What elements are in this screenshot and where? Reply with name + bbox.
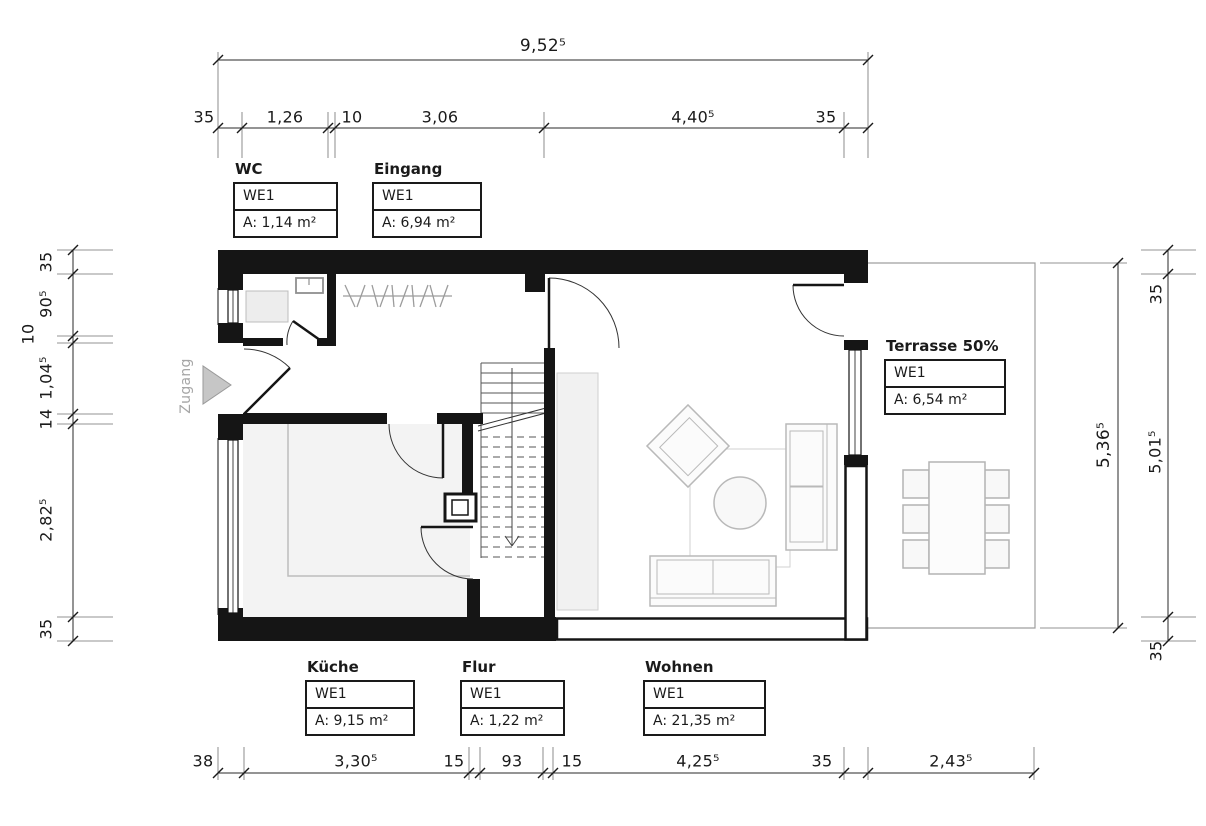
entry-door [244,349,290,414]
room-stamp-box: WE1 A: 1,14 m² [233,182,338,238]
terrace [868,263,1035,628]
duct-shaft [445,494,476,521]
room-area: A: 21,35 m² [645,707,764,734]
room-stamp-box: WE1 A: 6,94 m² [372,182,482,238]
hollow-wall-right [846,466,867,640]
wc-door [287,321,327,345]
room-area: A: 9,15 m² [307,707,413,734]
dim-top-0: 35 [194,108,215,127]
room-stamp-eingang: Eingang WE1 A: 6,94 m² [372,160,482,238]
dim-left-4: 14 [37,409,56,430]
room-name: Terrasse 50% [886,337,1006,355]
room-unit: WE1 [645,682,764,707]
room-stamp-wohnen: Wohnen WE1 A: 21,35 m² [643,658,766,736]
room-area: A: 6,94 m² [374,209,480,236]
dim-bottom-3: 93 [502,752,523,771]
wc-window [218,288,238,325]
room-name: Eingang [374,160,482,178]
dim-top-3: 3,06 [422,108,459,127]
dim-right-2: 35 [1147,641,1166,662]
terrace-door [793,285,844,336]
terrace-window [849,350,861,455]
dim-top-2: 10 [342,108,363,127]
living-room-furniture [647,405,837,606]
room-stamp-terrasse: Terrasse 50% WE1 A: 6,54 m² [884,337,1006,415]
dim-left-0: 35 [37,252,56,273]
room-name: Küche [307,658,415,676]
dim-right-1: 5,01⁵ [1146,430,1165,474]
dim-left-2: 10 [19,324,38,345]
room-stamp-box: WE1 A: 1,22 m² [460,680,565,736]
room-stamp-box: WE1 A: 21,35 m² [643,680,766,736]
dim-top-1: 1,26 [267,108,304,127]
hollow-wall-bottom [557,619,867,640]
wc-fixtures [246,278,323,322]
dim-left-5: 2,82⁵ [37,498,56,542]
dim-top-4: 4,40⁵ [671,108,715,127]
room-stamp-box: WE1 A: 6,54 m² [884,359,1006,415]
wardrobe-hatching [343,285,452,307]
room-unit: WE1 [307,682,413,707]
dim-bottom-4: 15 [562,752,583,771]
dim-top-5: 35 [816,108,837,127]
kitchen-window [218,438,238,615]
dim-bottom-6: 35 [812,752,833,771]
sofa-right [786,424,837,550]
room-unit: WE1 [374,184,480,209]
dim-bottom-1: 3,30⁵ [334,752,378,771]
dim-bottom-0: 38 [193,752,214,771]
room-stamp-kueche: Küche WE1 A: 9,15 m² [305,658,415,736]
dim-bottom-5: 4,25⁵ [676,752,720,771]
room-stamp-wc: WC WE1 A: 1,14 m² [233,160,338,238]
room-stamp-box: WE1 A: 9,15 m² [305,680,415,736]
dim-left-6: 35 [37,619,56,640]
room-unit: WE1 [462,682,563,707]
dim-right-total: 5,36⁵ [1094,422,1114,468]
dim-bottom-2: 15 [444,752,465,771]
room-unit: WE1 [235,184,336,209]
room-stamp-flur: Flur WE1 A: 1,22 m² [460,658,565,736]
room-area: A: 1,14 m² [235,209,336,236]
dim-left-3: 1,04⁵ [37,356,56,400]
entrance-label: Zugang [178,358,194,414]
dim-left-1: 90⁵ [37,290,56,318]
room-name: Wohnen [645,658,766,676]
dim-bottom-7: 2,43⁵ [929,752,973,771]
staircase [478,363,546,558]
terrace-dining-set [903,462,1009,574]
dim-top-total: 9,52⁵ [520,36,566,56]
room-area: A: 6,54 m² [886,386,1004,413]
living-room-door [549,278,619,348]
entrance-arrow-icon [203,366,231,404]
dim-right-0: 35 [1147,284,1166,305]
room-name: Flur [462,658,565,676]
coffee-table [714,477,766,529]
room-name: WC [235,160,338,178]
room-area: A: 1,22 m² [462,707,563,734]
floor-plan-canvas: 9,52⁵ 35 1,26 10 3,06 4,40⁵ 35 38 3,30⁵ … [0,0,1206,826]
armchair [647,405,729,487]
room-unit: WE1 [886,361,1004,386]
sofa-bottom [650,556,776,606]
